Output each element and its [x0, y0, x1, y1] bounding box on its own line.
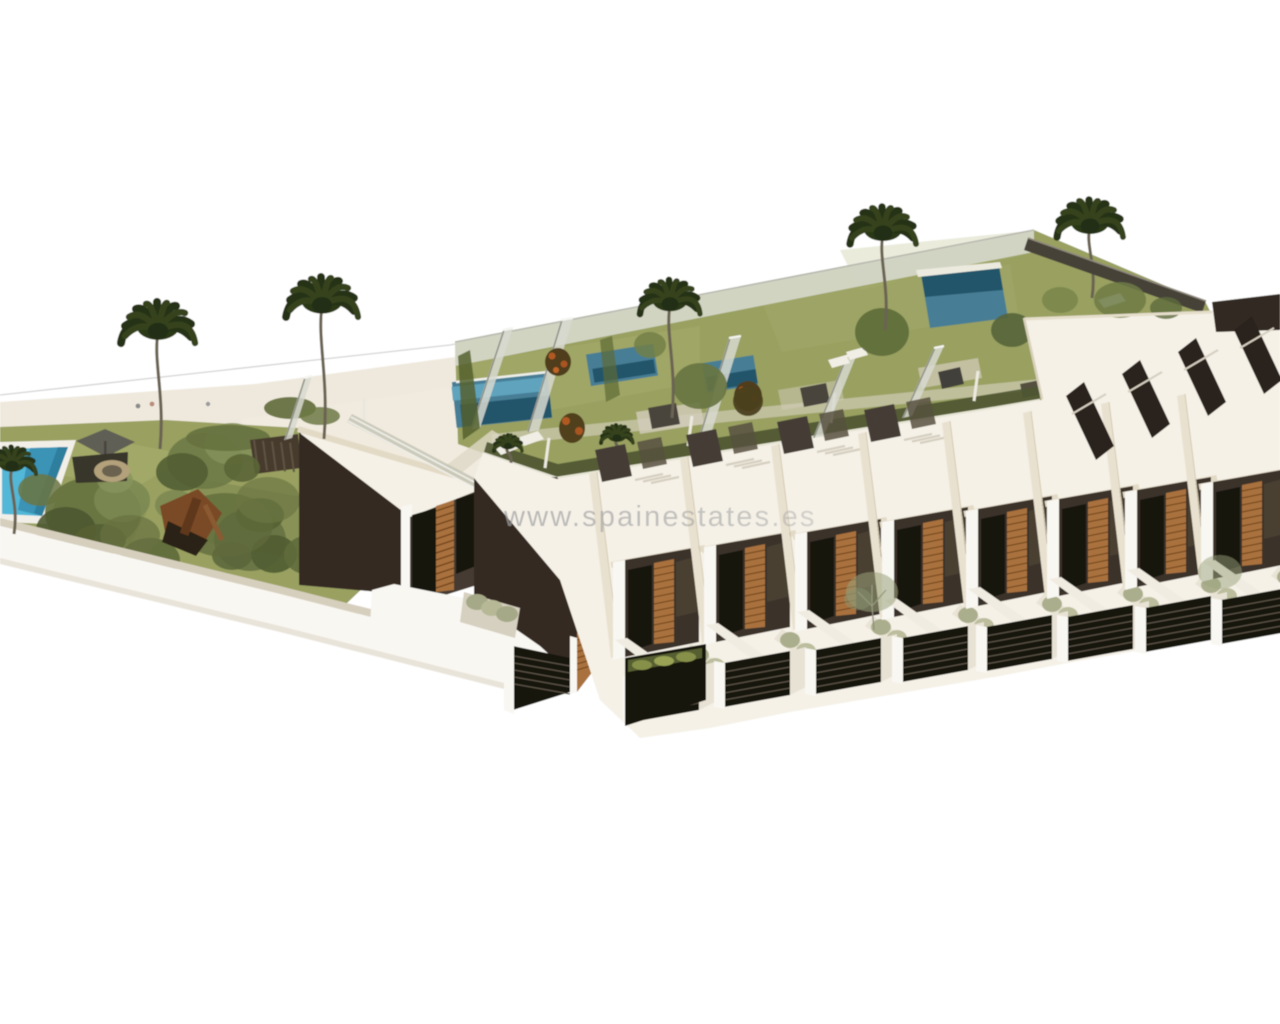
- svg-text:www.spainestates.es: www.spainestates.es: [503, 501, 817, 533]
